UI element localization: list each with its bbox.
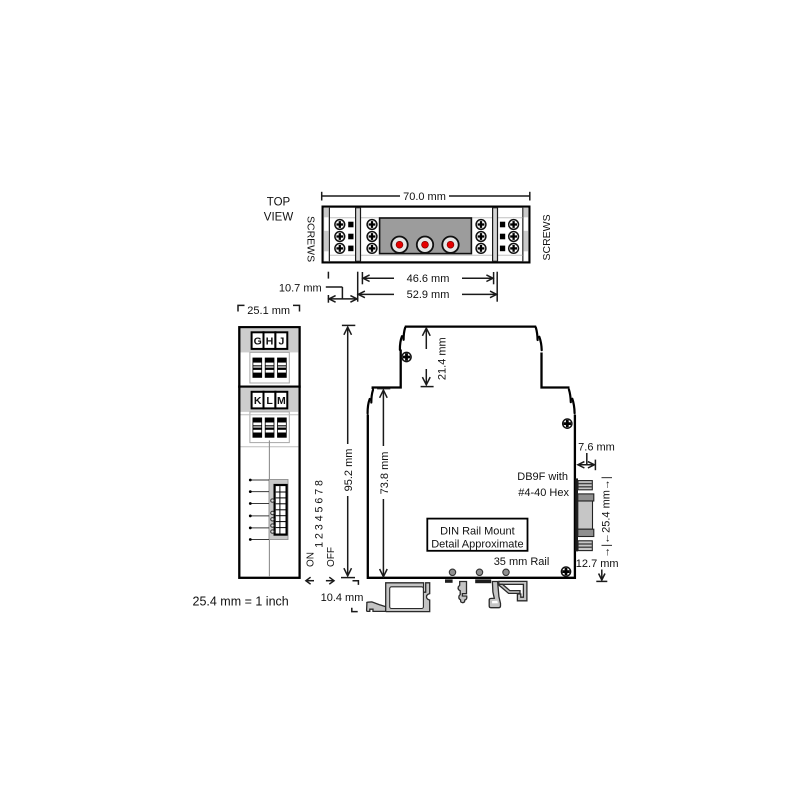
svg-text:73.8 mm: 73.8 mm <box>379 452 391 495</box>
svg-text:M: M <box>277 395 286 407</box>
svg-text:21.4 mm: 21.4 mm <box>437 337 449 380</box>
svg-text:Detail Approximate: Detail Approximate <box>431 539 523 551</box>
svg-text:SCREWS: SCREWS <box>541 214 553 260</box>
svg-text:K: K <box>254 395 262 407</box>
svg-text:35 mm Rail: 35 mm Rail <box>494 556 550 568</box>
svg-text:TOP: TOP <box>267 197 291 209</box>
svg-text:25.4 mm = 1 inch: 25.4 mm = 1 inch <box>193 595 289 609</box>
svg-text:SCREWS: SCREWS <box>305 216 317 262</box>
svg-text:DB9F with: DB9F with <box>517 471 568 483</box>
svg-text:70.0 mm: 70.0 mm <box>403 191 446 203</box>
svg-text:10.7 mm: 10.7 mm <box>279 282 322 294</box>
svg-text:52.9 mm: 52.9 mm <box>407 289 450 301</box>
svg-text:VIEW: VIEW <box>264 212 294 224</box>
svg-text:OFF: OFF <box>326 547 337 567</box>
svg-text:12.7 mm: 12.7 mm <box>576 558 619 570</box>
svg-text:G: G <box>254 336 262 348</box>
svg-text:46.6 mm: 46.6 mm <box>407 273 450 285</box>
svg-text:#4-40 Hex: #4-40 Hex <box>518 487 569 499</box>
svg-text:DIN Rail Mount: DIN Rail Mount <box>440 526 515 538</box>
svg-text:7.6 mm: 7.6 mm <box>578 442 615 454</box>
svg-text:10.4 mm: 10.4 mm <box>321 592 364 604</box>
svg-text:ON: ON <box>305 552 316 567</box>
svg-text:→|←25.4 mm→|: →|←25.4 mm→| <box>600 476 612 558</box>
svg-text:L: L <box>266 395 273 407</box>
svg-text:1 2 3 4 5 6 7 8: 1 2 3 4 5 6 7 8 <box>314 480 326 548</box>
svg-text:J: J <box>278 336 284 348</box>
svg-text:95.2 mm: 95.2 mm <box>343 449 355 492</box>
svg-text:H: H <box>266 336 274 348</box>
svg-text:25.1 mm: 25.1 mm <box>247 305 290 317</box>
